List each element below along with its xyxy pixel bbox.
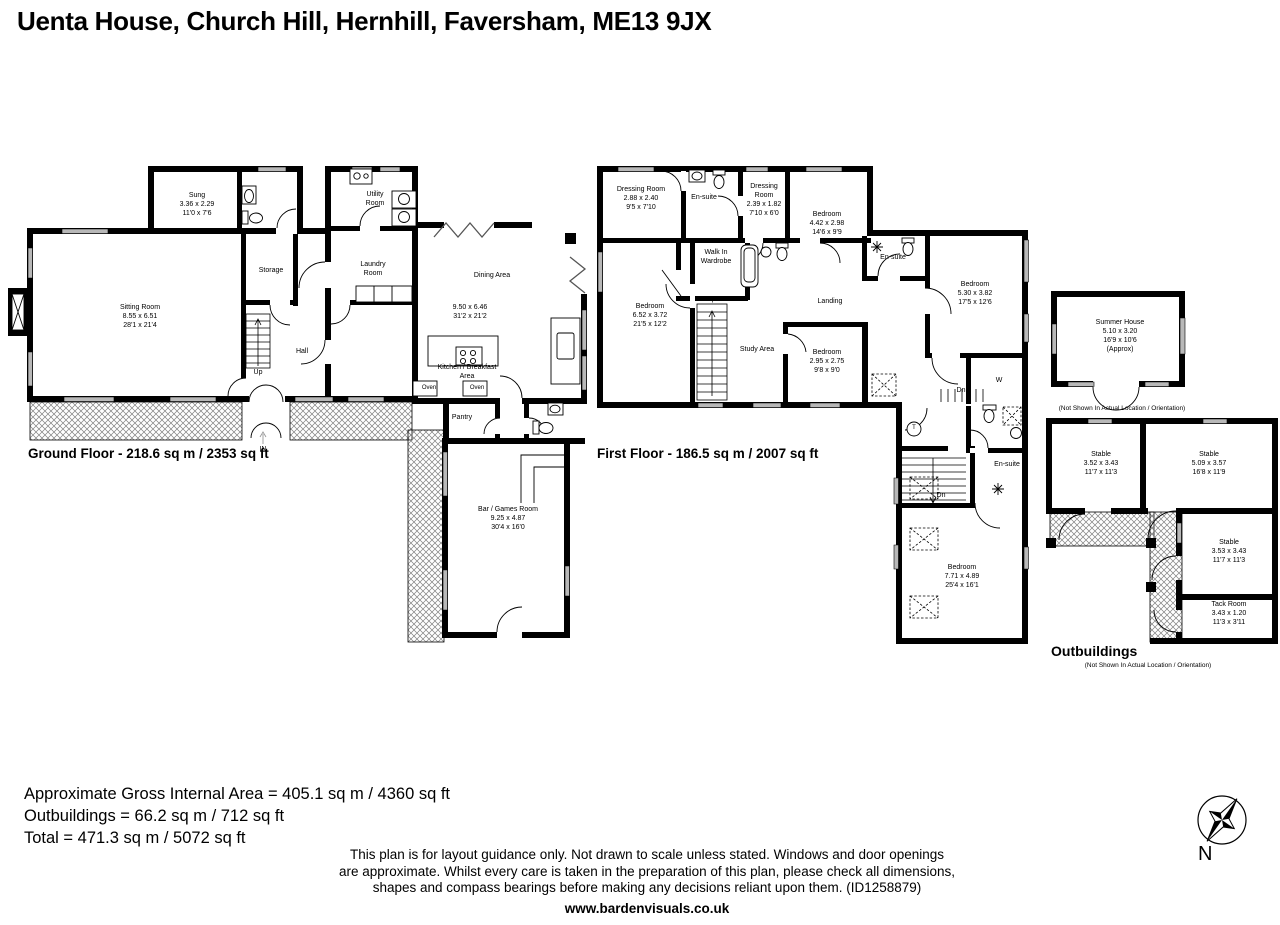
ground-floor-title: Ground Floor - 218.6 sq m / 2353 sq ft: [28, 446, 269, 461]
room-label-bedroom-1: Bedroom 4.42 x 2.98 14'6 x 9'9: [810, 211, 845, 238]
wardrobe-label: W: [996, 377, 1003, 386]
first-floor-title: First Floor - 186.5 sq m / 2007 sq ft: [597, 446, 818, 461]
wc-cistern: [533, 421, 539, 434]
room-label-utility-room: Utility Room: [357, 191, 393, 209]
ensuite3-basin: [1011, 428, 1022, 439]
entrance-arrow: [260, 432, 266, 444]
toilet: [242, 211, 248, 224]
room-label-bedroom-4: Bedroom 5.30 x 3.82 17'5 x 12'6: [958, 281, 993, 308]
room-label-hall: Hall: [296, 348, 308, 357]
tank-label: T: [912, 425, 916, 433]
room-label-sitting-room: Sitting Room 8.55 x 6.51 28'1 x 21'4: [120, 304, 160, 331]
shower-symbol: [871, 241, 883, 253]
room-label-en-suite-1: En-suite: [691, 194, 717, 203]
stairs-down-label-1: Dn: [957, 387, 966, 396]
gross-internal-area: Approximate Gross Internal Area = 405.1 …: [24, 783, 450, 805]
room-label-bar-games-room: Bar / Games Room 9.25 x 4.87 30'4 x 16'0: [478, 506, 538, 533]
room-label-study-area: Study Area: [740, 346, 774, 355]
room-label-stable-1: Stable 3.52 x 3.43 11'7 x 11'3: [1084, 451, 1119, 478]
room-label-laundry-room: Laundry Room: [352, 261, 394, 279]
room-label-landing: Landing: [818, 298, 843, 307]
summer-house-note: (Not Shown In Actual Location / Orientat…: [1059, 405, 1185, 413]
website-link: www.bardenvisuals.co.uk: [247, 901, 1047, 918]
hatched-paving: [30, 402, 1182, 642]
stairs-up-label-first: Up: [707, 296, 716, 305]
room-label-kitchen: Kitchen / Breakfast Area: [432, 364, 502, 382]
bath-toilet: [777, 248, 787, 261]
room-label-summer-house: Summer House 5.10 x 3.20 16'9 x 10'6 (Ap…: [1096, 319, 1145, 355]
room-label-walk-in-wardrobe: Walk In Wardrobe: [693, 249, 739, 267]
bar-counter: [521, 455, 567, 503]
outbuildings-title: Outbuildings: [1051, 643, 1137, 659]
room-label-bedroom-5: Bedroom 7.71 x 4.89 25'4 x 16'1: [945, 564, 980, 591]
utility-appliance: [350, 169, 372, 184]
room-label-tack-room: Tack Room 3.43 x 1.20 11'3 x 3'11: [1211, 601, 1246, 628]
room-label-bedroom-2: Bedroom 6.52 x 3.72 21'5 x 12'2: [633, 303, 668, 330]
compass-rose: [1195, 790, 1249, 850]
room-label-stable-2: Stable 5.09 x 3.57 16'8 x 11'9: [1192, 451, 1227, 478]
room-label-snug: Sung 3.36 x 2.29 11'0 x 7'6: [180, 192, 215, 219]
room-label-storage: Storage: [259, 267, 284, 276]
ensuite1-cistern: [713, 170, 725, 175]
kitchen-sink: [557, 333, 574, 359]
room-label-en-suite-3: En-suite: [994, 461, 1020, 470]
outbuildings-area: Outbuildings = 66.2 sq m / 712 sq ft: [24, 805, 450, 827]
room-label-dressing-room-1: Dressing Room 2.88 x 2.40 9'5 x 7'10: [617, 186, 665, 213]
bath-basin: [761, 247, 771, 257]
stairs-up-label-ground: Up: [254, 369, 263, 378]
area-summary: Approximate Gross Internal Area = 405.1 …: [24, 783, 450, 849]
ensuite3-toilet: [984, 410, 994, 423]
wc-toilet: [539, 423, 553, 434]
room-label-en-suite-2: En-suite: [880, 254, 906, 263]
dining-area-dimensions: 9.50 x 6.46 31'2 x 21'2: [453, 304, 488, 322]
ensuite1-toilet: [714, 176, 724, 189]
floorplan-page: Uenta House, Church Hill, Hernhill, Fave…: [0, 0, 1280, 925]
room-label-dining-area: Dining Area: [474, 272, 510, 281]
disclaimer: This plan is for layout guidance only. N…: [247, 847, 1047, 917]
room-label-dressing-room-2: Dressing Room 2.39 x 1.82 7'10 x 6'0: [743, 183, 785, 219]
zigzag-opening-symbol: [434, 223, 585, 293]
oven-label-right: Oven: [470, 385, 484, 393]
room-label-stable-3: Stable 3.53 x 3.43 11'7 x 11'3: [1212, 539, 1247, 566]
oven-label-left: Oven: [422, 385, 436, 393]
shower-symbol-2: [992, 483, 1004, 495]
laundry-counter: [356, 286, 412, 302]
room-label-pantry: Pantry: [452, 414, 472, 423]
outbuildings-note: (Not Shown In Actual Location / Orientat…: [1085, 662, 1211, 670]
stairs-down-label-2: Dn: [937, 492, 946, 501]
total-area: Total = 471.3 sq m / 5072 sq ft: [24, 827, 450, 849]
compass-north-label: N: [1198, 843, 1212, 866]
room-label-bedroom-3: Bedroom 2.95 x 2.75 9'8 x 9'0: [810, 349, 845, 376]
hob: [456, 347, 482, 365]
